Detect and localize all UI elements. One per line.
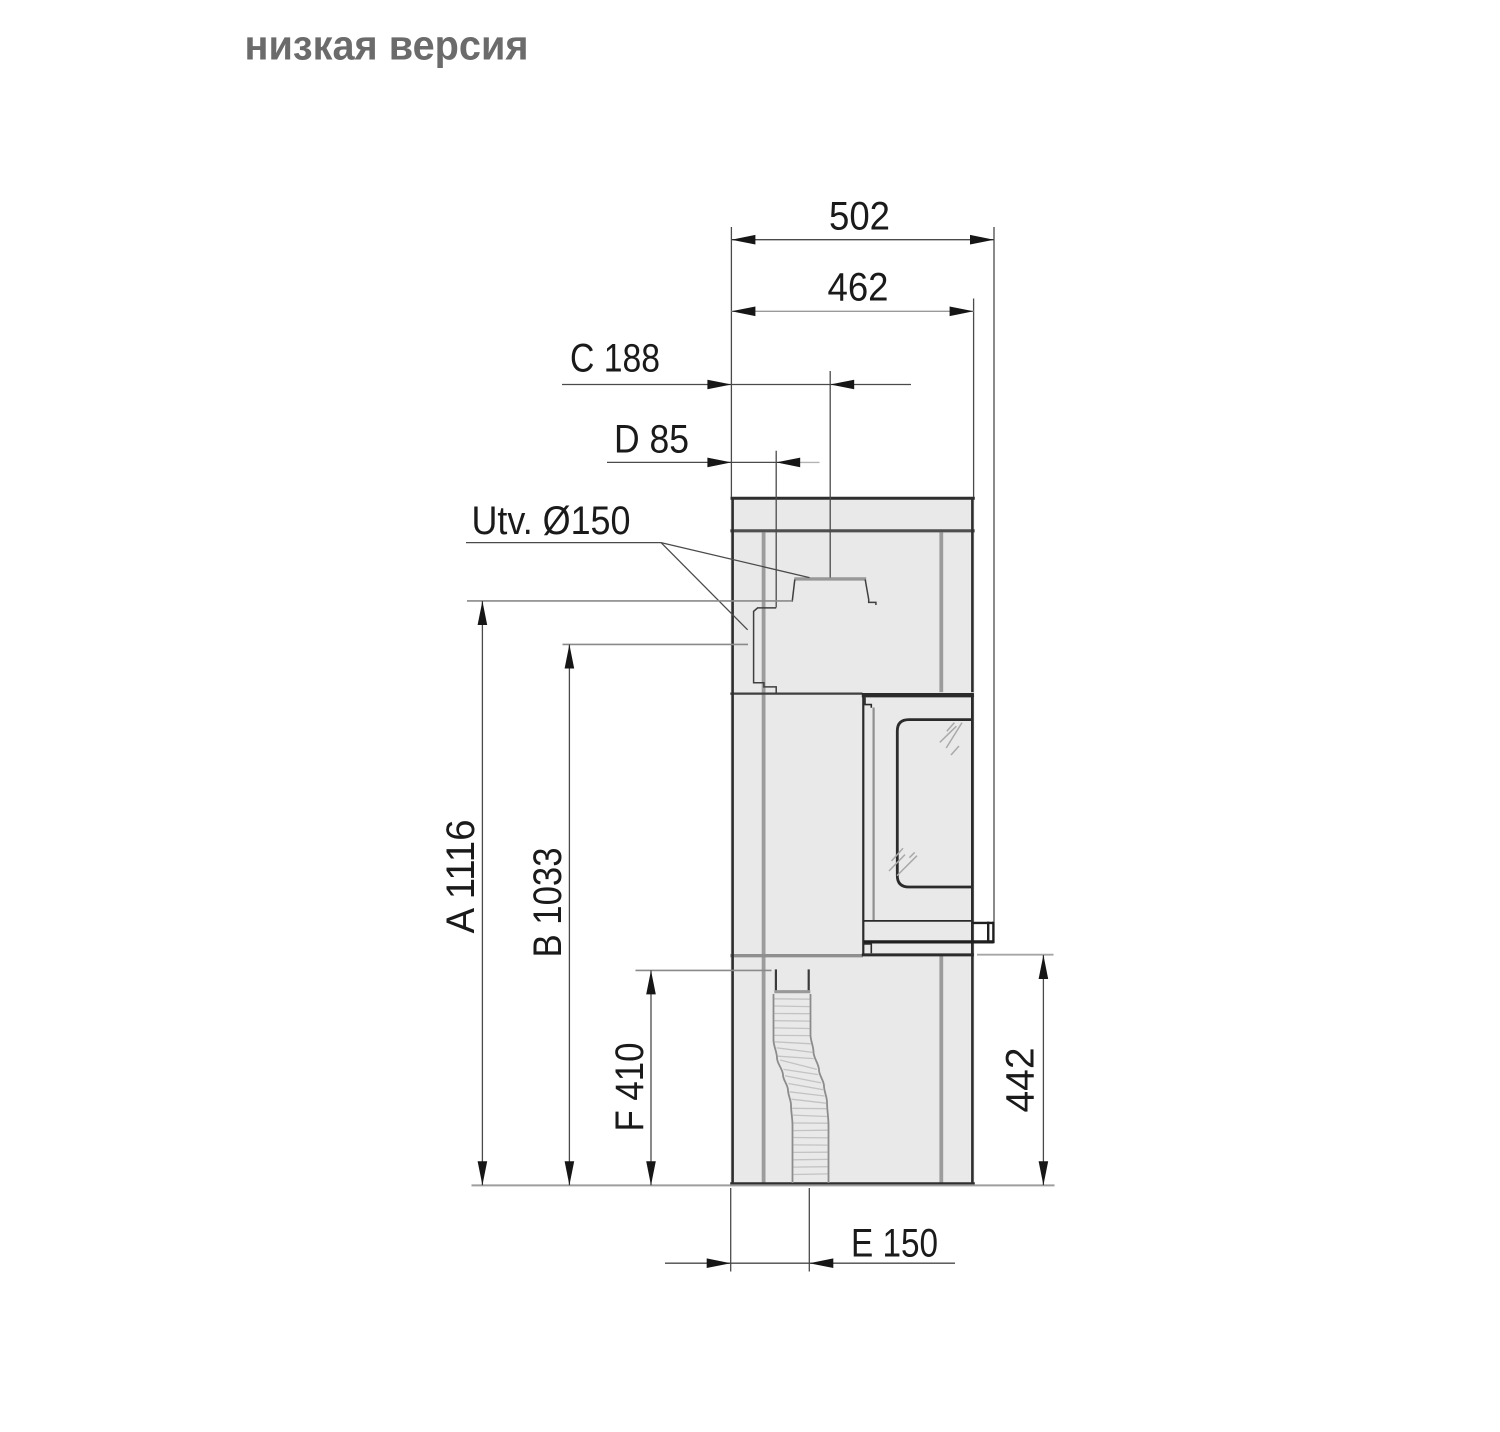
svg-text:442: 442 (999, 1048, 1043, 1113)
svg-text:C 188: C 188 (570, 337, 660, 381)
svg-text:Utv. Ø150: Utv. Ø150 (472, 499, 631, 543)
svg-text:F 410: F 410 (608, 1043, 652, 1132)
svg-text:B 1033: B 1033 (526, 848, 570, 958)
svg-text:A 1116: A 1116 (439, 820, 483, 934)
svg-text:D 85: D 85 (614, 418, 689, 462)
svg-text:462: 462 (828, 266, 889, 310)
svg-text:502: 502 (829, 195, 890, 239)
svg-text:E 150: E 150 (851, 1222, 938, 1266)
svg-text:низкая версия: низкая версия (245, 22, 529, 69)
